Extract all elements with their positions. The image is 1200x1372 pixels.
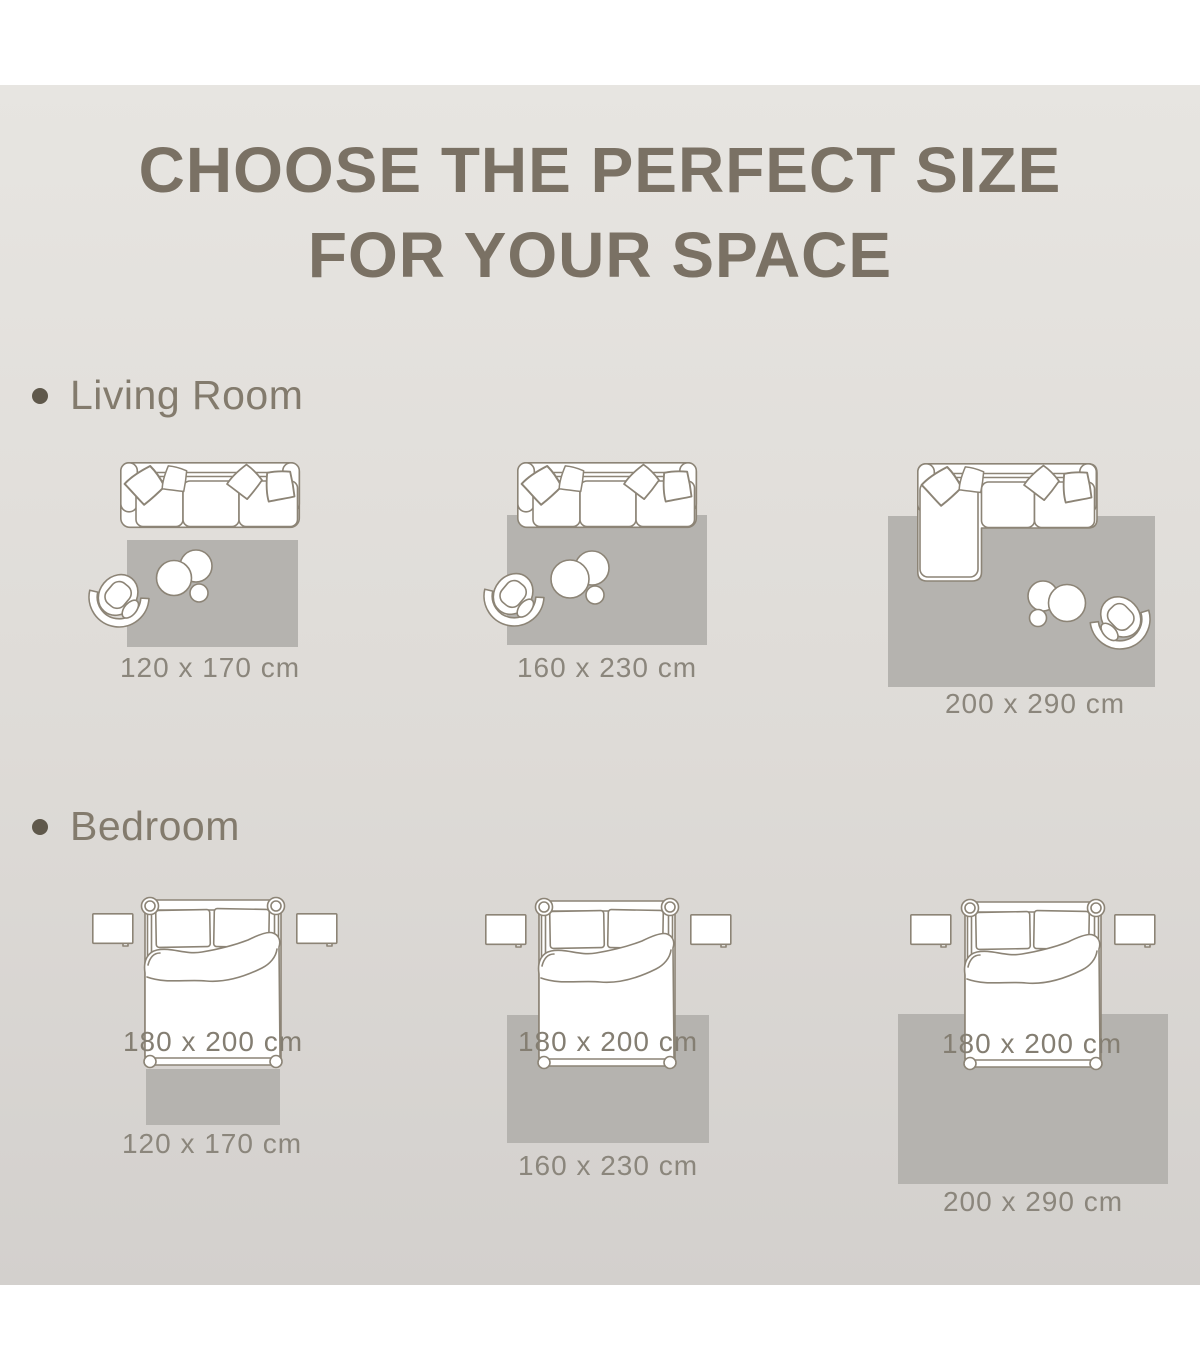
sofa-icon — [517, 460, 701, 527]
nightstand-icon — [1115, 915, 1155, 947]
bed-size-label-1: 180 x 200 cm — [123, 1026, 303, 1058]
rug-shape-bedroom-120x170 — [146, 1069, 280, 1125]
rug-size-label-bedroom-2: 160 x 230 cm — [518, 1150, 698, 1182]
nightstand-icon — [486, 915, 526, 947]
rug-size-infographic: CHOOSE THE PERFECT SIZE FOR YOUR SPACE L… — [0, 0, 1200, 1372]
rug-size-label-bedroom-3: 200 x 290 cm — [943, 1186, 1123, 1218]
bed-size-label-2: 180 x 200 cm — [518, 1026, 698, 1058]
nightstand-icon — [691, 915, 731, 947]
rug-size-label-living-2: 160 x 230 cm — [517, 652, 697, 684]
rug-size-label-bedroom-1: 120 x 170 cm — [122, 1128, 302, 1160]
rug-shape-living-160x230 — [507, 515, 707, 645]
nightstand-icon — [93, 914, 133, 946]
nightstand-icon — [911, 915, 951, 947]
nightstand-icon — [297, 914, 337, 946]
bed-size-label-3: 180 x 200 cm — [942, 1028, 1122, 1060]
sofa-icon — [120, 460, 304, 527]
rug-shape-living-120x170 — [127, 540, 298, 647]
rug-size-label-living-1: 120 x 170 cm — [120, 652, 300, 684]
rug-size-label-living-3: 200 x 290 cm — [945, 688, 1125, 720]
